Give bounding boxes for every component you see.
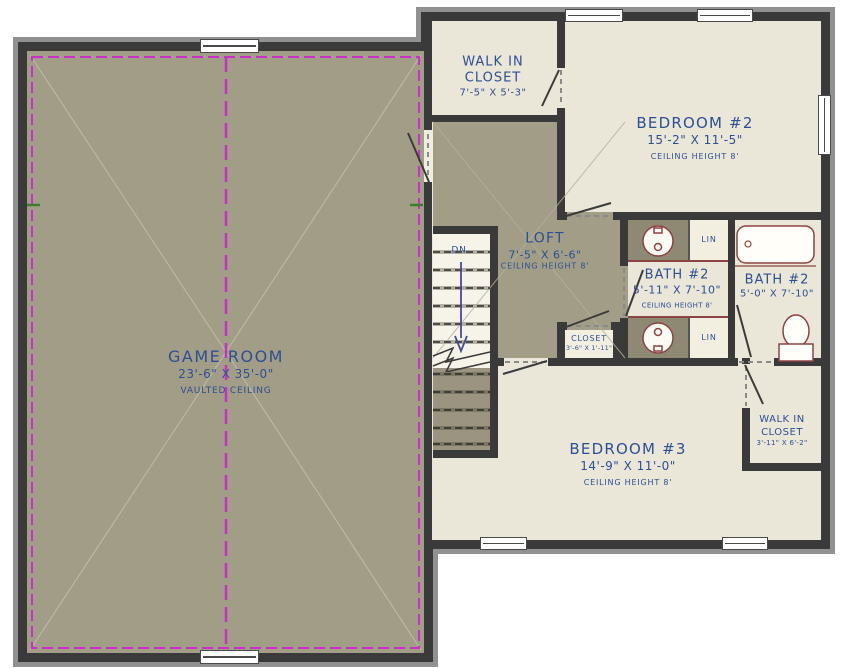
linen-top-label: LIN: [701, 235, 716, 245]
bedroom3-label: BEDROOM #3 14'-9" X 11'-0" CEILING HEIGH…: [569, 440, 686, 488]
window-gameroom-bottom: [200, 650, 259, 664]
vanity-top: [628, 220, 690, 262]
vanity-edge-top: [628, 260, 728, 262]
room-name: BATH #2: [633, 268, 721, 284]
bath2b-label: BATH #2 5'-0" X 7'-10": [740, 273, 814, 302]
closet-bottom-wall: [424, 115, 565, 122]
stairs-lower-floor: [433, 368, 490, 450]
linen-text: LIN: [701, 333, 716, 343]
room-name-line1: WALK IN: [459, 55, 526, 71]
stairs-top-wall: [433, 226, 498, 234]
room-note: CEILING HEIGHT 8': [501, 262, 590, 272]
stairs-down-label: DN: [451, 245, 466, 256]
room-dims: 5'-11" X 7'-10": [633, 284, 721, 298]
window-bedroom3-left: [480, 537, 527, 550]
room-dims: 7'-5" X 6'-6": [501, 248, 590, 262]
room-note: CEILING HEIGHT 8': [633, 302, 721, 311]
room-note: CEILING HEIGHT 8': [569, 478, 686, 488]
room-name: BEDROOM #2: [636, 114, 753, 133]
bedroom3-top-wall-a: [498, 358, 504, 366]
window-bedroom2-top-left: [565, 9, 623, 22]
window-gameroom-top: [200, 39, 259, 53]
bedroom2-label: BEDROOM #2 15'-2" X 11'-5" CEILING HEIGH…: [636, 114, 753, 162]
window-bedroom2-top-right: [697, 9, 753, 22]
bath-divider-wall: [728, 220, 735, 358]
stairs-right-wall: [490, 234, 498, 458]
bedroom3-top-wall-c: [774, 358, 821, 366]
room-dims: 14'-9" X 11'-0": [569, 459, 686, 474]
bedroom3-top-wall-b: [548, 358, 738, 366]
room-name: LOFT: [501, 230, 590, 248]
gameroom-door-opening: [424, 130, 433, 182]
bath2-left-wall-a: [620, 220, 628, 266]
down-text: DN: [451, 245, 466, 256]
vanity-bottom: [628, 318, 690, 358]
loft-label: LOFT 7'-5" X 6'-6" CEILING HEIGHT 8': [501, 230, 590, 271]
room-dims: 15'-2" X 11'-5": [636, 133, 753, 148]
hall-closet-left-wall: [557, 322, 565, 358]
room-name: CLOSET: [566, 334, 612, 344]
room-note: CEILING HEIGHT 8': [636, 152, 753, 162]
bath2-label: BATH #2 5'-11" X 7'-10" CEILING HEIGHT 8…: [633, 268, 721, 311]
room-dims: 5'-0" X 7'-10": [740, 289, 814, 302]
stairs-bottom-wall: [433, 450, 490, 458]
walkin2-left-wall-a: [742, 358, 750, 364]
room-note: VAULTED CEILING: [168, 386, 284, 397]
room-dims: 3'-11" X 6'-2": [756, 439, 807, 448]
room-name: BEDROOM #3: [569, 440, 686, 459]
room-name-line1: WALK IN: [756, 414, 807, 427]
room-dims: 3'-6" X 1'-11": [566, 344, 612, 352]
room-dims: 23'-6" X 35'-0": [168, 367, 284, 382]
walkin2-left-wall-b: [742, 408, 750, 463]
bedroom2-left-wall-b: [557, 108, 565, 212]
vanity-edge-bottom: [628, 316, 728, 318]
linen-text: LIN: [701, 235, 716, 245]
bedroom2-left-wall-a: [557, 21, 565, 68]
room-name: GAME ROOM: [168, 347, 284, 367]
room-name-line2: CLOSET: [756, 427, 807, 440]
window-bedroom3-right: [722, 537, 768, 550]
bath2-left-wall-b: [620, 318, 628, 358]
room-name: BATH #2: [740, 273, 814, 289]
linen-bottom-label: LIN: [701, 333, 716, 343]
floor-plan: GAME ROOM 23'-6" X 35'-0" VAULTED CEILIN…: [0, 0, 844, 668]
vanity-linen-divider-bottom: [688, 318, 690, 358]
hall-closet-label: CLOSET 3'-6" X 1'-11": [566, 334, 612, 352]
bedroom2-bottom-wall-b: [613, 212, 830, 220]
walkin2-bottom-wall: [742, 463, 821, 471]
walk-in-closet-label: WALK IN CLOSET 7'-5" X 5'-3": [459, 55, 526, 100]
game-room-label: GAME ROOM 23'-6" X 35'-0" VAULTED CEILIN…: [168, 347, 284, 397]
room-name-line2: CLOSET: [459, 71, 526, 87]
hall-closet-right-wall: [613, 322, 621, 358]
walk-in-closet2-label: WALK IN CLOSET 3'-11" X 6'-2": [756, 414, 807, 448]
room-dims: 7'-5" X 5'-3": [459, 87, 526, 100]
vanity-linen-divider-top: [688, 220, 690, 262]
window-bedroom2-right: [818, 95, 831, 155]
bedroom2-bottom-wall-a: [557, 212, 567, 220]
